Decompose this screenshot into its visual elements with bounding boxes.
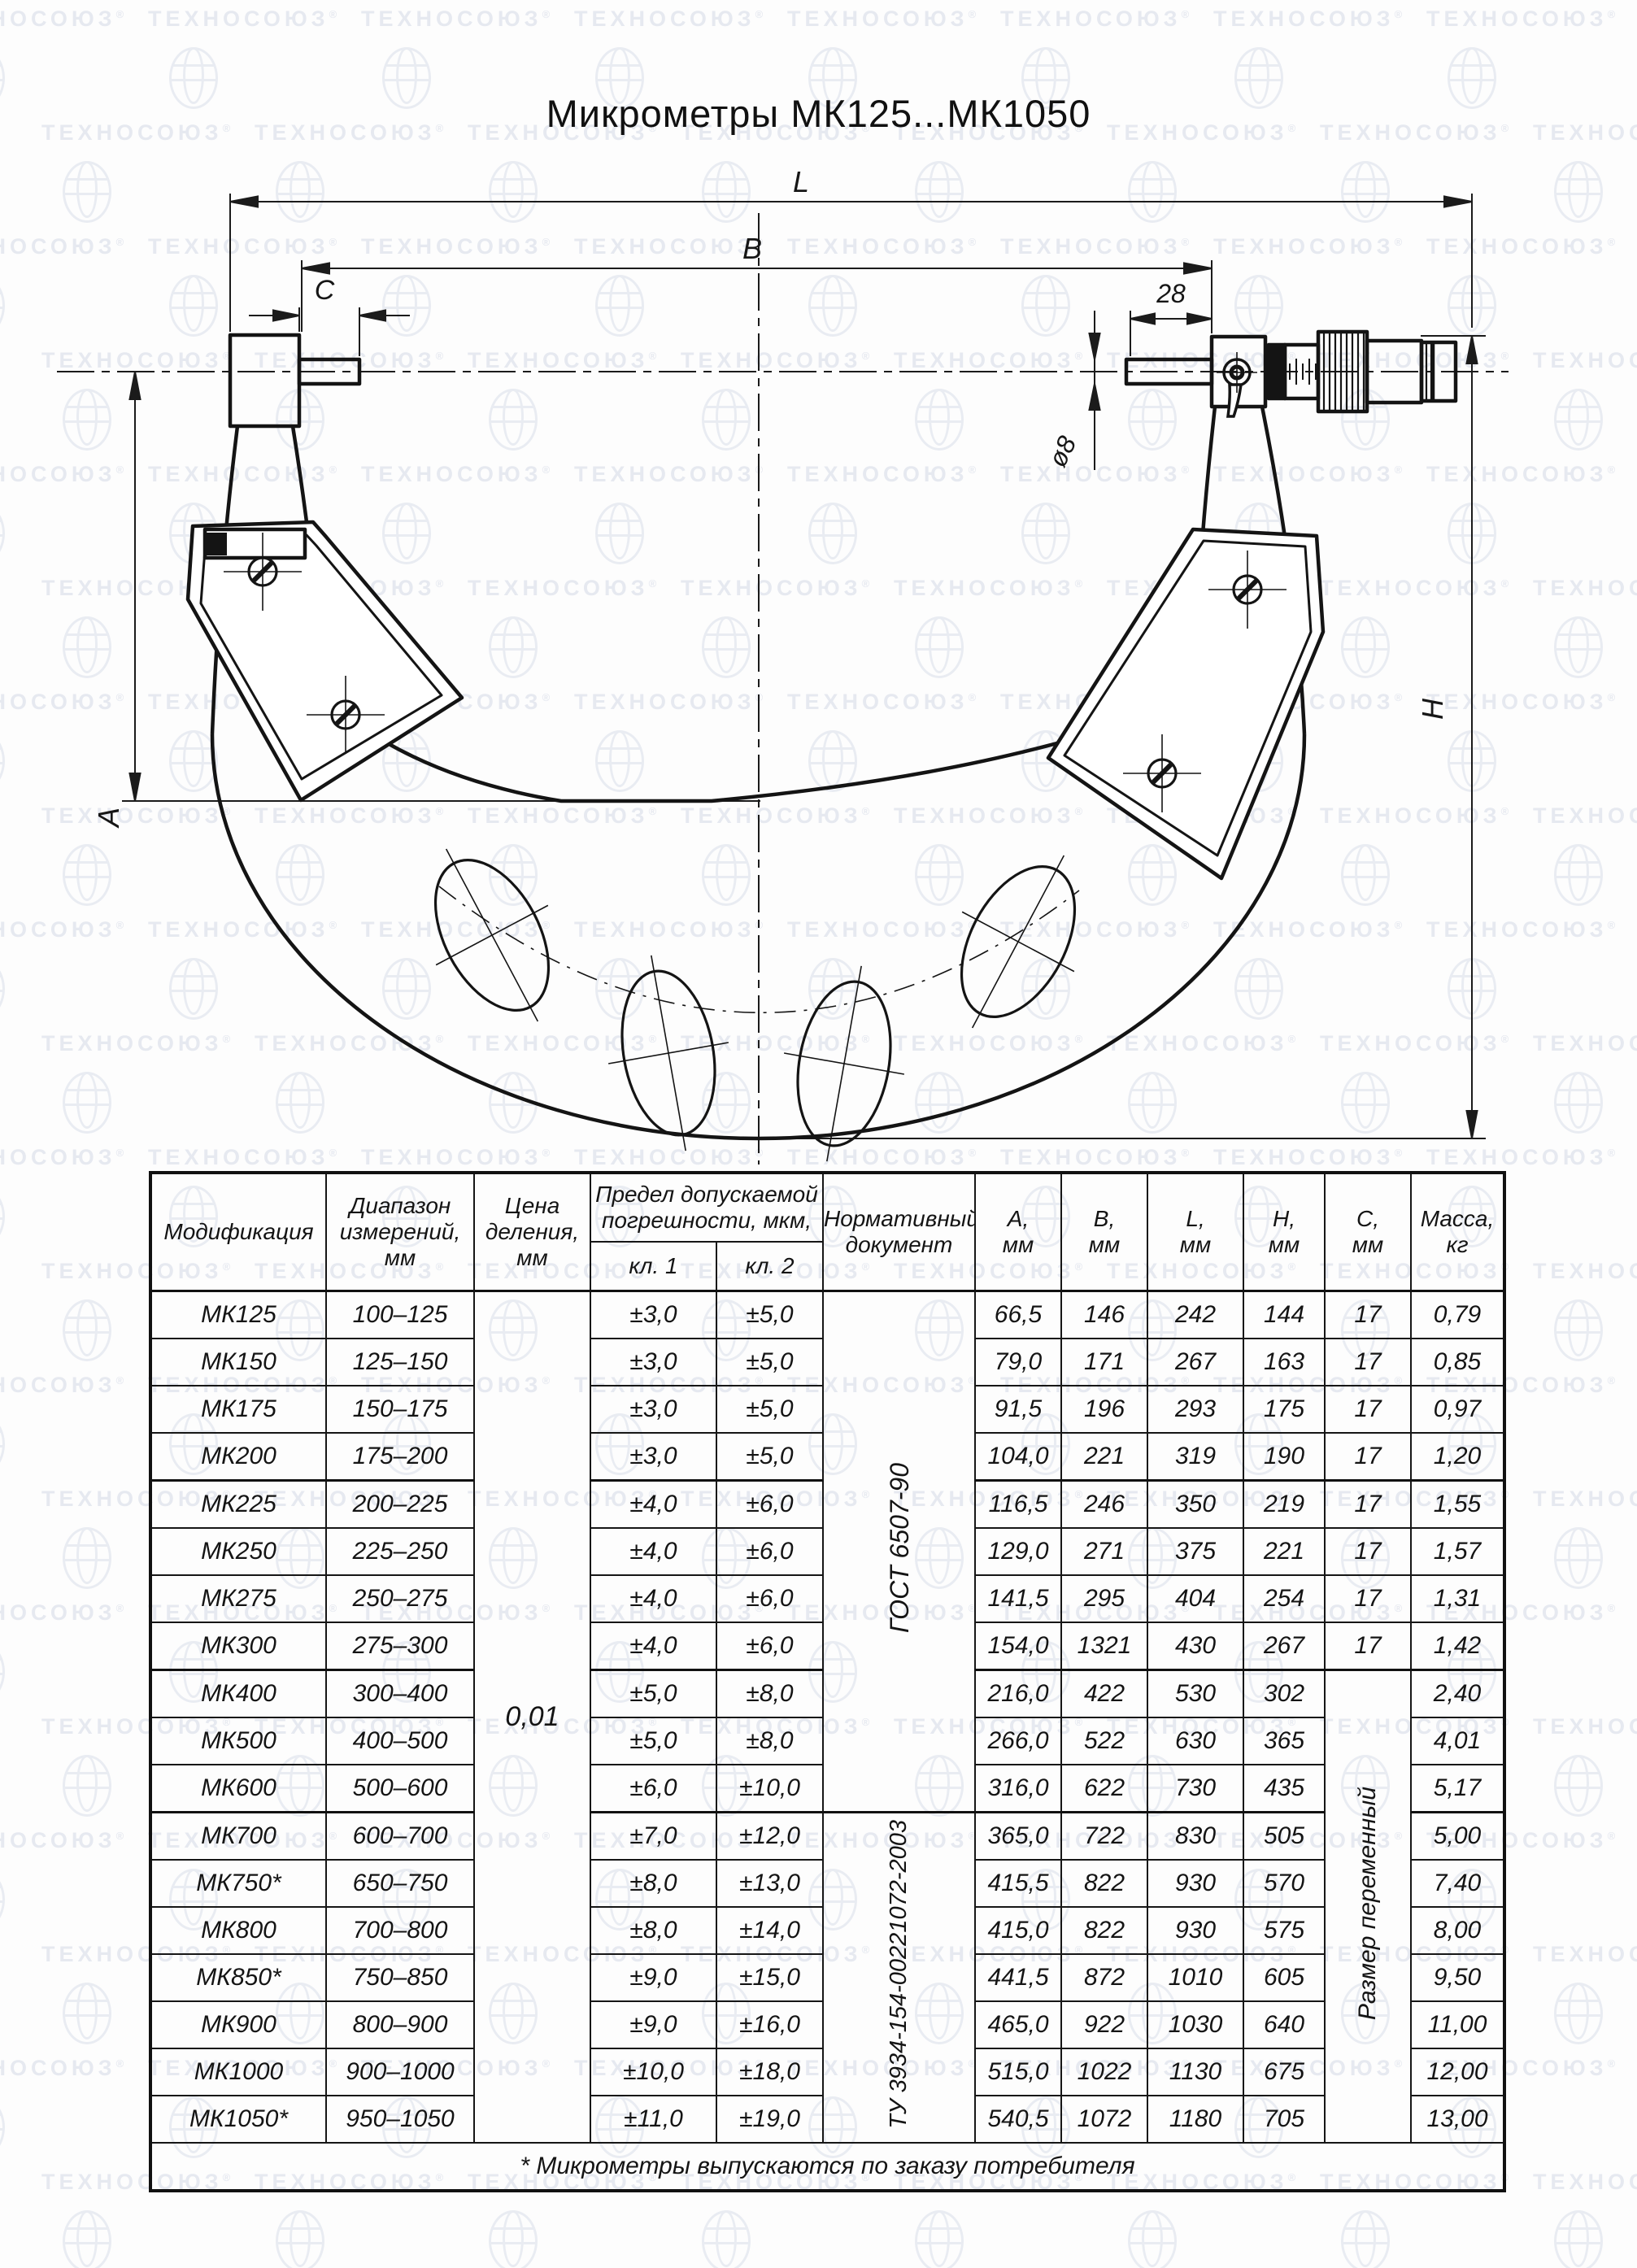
cell-modification: МК300 [150, 1622, 326, 1670]
globe-icon [1554, 1527, 1603, 1589]
dim-H [1467, 336, 1478, 1138]
cell-range: 150–175 [326, 1386, 474, 1433]
cell-range: 200–225 [326, 1481, 474, 1529]
cell-kl2: ±5,0 [716, 1386, 823, 1433]
cell-modification: МК700 [150, 1813, 326, 1861]
cell-kl2: ±14,0 [716, 1907, 823, 1954]
footnote: * Микрометры выпускаются по заказу потре… [150, 2143, 1504, 2191]
insulator-plate-right [1048, 529, 1323, 878]
cell-a: 154,0 [975, 1622, 1061, 1670]
cell-mass: 7,40 [1411, 1860, 1504, 1907]
cell-kl1: ±9,0 [590, 2001, 716, 2048]
globe-icon [1554, 1299, 1603, 1361]
globe-icon [63, 1527, 111, 1589]
watermark-tile: ТЕХНОСОЮЗ® [1533, 2166, 1637, 2268]
page-title: Микрометры МК125...МК1050 [0, 91, 1637, 136]
cell-l: 350 [1147, 1481, 1243, 1529]
cell-kl1: ±3,0 [590, 1339, 716, 1386]
watermark-text: ТЕХНОСОЮЗ® [1533, 1259, 1637, 1284]
col-header-price-division: Цена деления, мм [474, 1173, 590, 1291]
cell-l: 375 [1147, 1528, 1243, 1575]
footnote-row: * Микрометры выпускаются по заказу потре… [150, 2143, 1504, 2191]
cell-kl2: ±8,0 [716, 1670, 823, 1718]
cell-range: 225–250 [326, 1528, 474, 1575]
cell-b: 1022 [1061, 2048, 1147, 2096]
cell-modification: МК1050* [150, 2096, 326, 2143]
cell-mass: 11,00 [1411, 2001, 1504, 2048]
table-row: МК700600–700±7,0±12,0ТУ 3934-154-0022107… [150, 1813, 1504, 1861]
cell-c: 17 [1325, 1433, 1411, 1481]
cell-h: 267 [1243, 1622, 1325, 1670]
cell-l: 1030 [1147, 2001, 1243, 2048]
table-row: МК125100–1250,01±3,0±5,0ГОСТ 6507-9066,5… [150, 1291, 1504, 1339]
cell-a: 216,0 [975, 1670, 1061, 1718]
cell-range: 125–150 [326, 1339, 474, 1386]
cell-range: 300–400 [326, 1670, 474, 1718]
watermark-tile: ТЕХНОСОЮЗ® [0, 2053, 159, 2166]
cell-kl2: ±12,0 [716, 1813, 823, 1861]
watermark-text: ТЕХНОСОЮЗ® [1533, 1487, 1637, 1512]
col-header-document: Нормативный документ [823, 1173, 975, 1291]
cell-a: 66,5 [975, 1291, 1061, 1339]
cell-h: 705 [1243, 2096, 1325, 2143]
watermark-tile: ТЕХНОСОЮЗ® [0, 1369, 159, 1483]
cell-l: 319 [1147, 1433, 1243, 1481]
globe-icon [489, 2210, 538, 2268]
globe-icon [1554, 1755, 1603, 1817]
cell-b: 922 [1061, 2001, 1147, 2048]
spec-table-header: Модификация Диапазон измерений, мм Цена … [150, 1173, 1504, 1291]
globe-icon [0, 1186, 5, 1247]
col-header-kl1: кл. 1 [590, 1242, 716, 1291]
cell-modification: МК400 [150, 1670, 326, 1718]
cell-a: 316,0 [975, 1765, 1061, 1813]
cell-range: 750–850 [326, 1954, 474, 2001]
cell-b: 1072 [1061, 2096, 1147, 2143]
cell-modification: МК1000 [150, 2048, 326, 2096]
cell-l: 1130 [1147, 2048, 1243, 2096]
dim-28 [1130, 314, 1212, 324]
cell-h: 365 [1243, 1717, 1325, 1765]
cell-c: 17 [1325, 1291, 1411, 1339]
cell-a: 515,0 [975, 2048, 1061, 2096]
cell-b: 822 [1061, 1907, 1147, 1954]
watermark-tile: ТЕХНОСОЮЗ® [1533, 1711, 1637, 1825]
cell-mass: 9,50 [1411, 1954, 1504, 2001]
cell-l: 730 [1147, 1765, 1243, 1813]
watermark-text: ТЕХНОСОЮЗ® [0, 2056, 124, 2081]
cell-a: 415,0 [975, 1907, 1061, 1954]
cell-kl2: ±18,0 [716, 2048, 823, 2096]
cell-modification: МК150 [150, 1339, 326, 1386]
globe-icon [0, 2096, 5, 2158]
col-header-a: А, мм [975, 1173, 1061, 1291]
cell-c: 17 [1325, 1481, 1411, 1529]
cell-b: 271 [1061, 1528, 1147, 1575]
dim-label-28: 28 [1156, 279, 1186, 308]
cell-l: 830 [1147, 1813, 1243, 1861]
cell-h: 570 [1243, 1860, 1325, 1907]
watermark-text: ТЕХНОСОЮЗ® [0, 1600, 124, 1626]
cell-range: 175–200 [326, 1433, 474, 1481]
cell-kl2: ±6,0 [716, 1575, 823, 1622]
cell-kl2: ±6,0 [716, 1528, 823, 1575]
cell-kl2: ±13,0 [716, 1860, 823, 1907]
cell-a: 91,5 [975, 1386, 1061, 1433]
cell-mass: 0,97 [1411, 1386, 1504, 1433]
watermark-tile: ТЕХНОСОЮЗ® [1533, 1483, 1637, 1597]
cell-b: 422 [1061, 1670, 1147, 1718]
cell-a: 104,0 [975, 1433, 1061, 1481]
dim-L [230, 197, 1472, 207]
cell-mass: 1,20 [1411, 1433, 1504, 1481]
spec-table: Модификация Диапазон измерений, мм Цена … [149, 1171, 1506, 2192]
cell-b: 622 [1061, 1765, 1147, 1813]
globe-icon [1341, 2210, 1390, 2268]
cell-range: 800–900 [326, 2001, 474, 2048]
cell-range: 900–1000 [326, 2048, 474, 2096]
col-header-range: Диапазон измерений, мм [326, 1173, 474, 1291]
cell-l: 430 [1147, 1622, 1243, 1670]
cell-h: 221 [1243, 1528, 1325, 1575]
cell-range: 500–600 [326, 1765, 474, 1813]
watermark-text: ТЕХНОСОЮЗ® [1533, 2170, 1637, 2195]
watermark-tile: ТЕХНОСОЮЗ® [0, 1825, 159, 1939]
cell-mass: 2,40 [1411, 1670, 1504, 1718]
vernier-ring [1269, 345, 1285, 398]
cell-b: 246 [1061, 1481, 1147, 1529]
dim-label-A: А [92, 808, 125, 829]
cell-l: 293 [1147, 1386, 1243, 1433]
cell-kl1: ±9,0 [590, 1954, 716, 2001]
cell-h: 575 [1243, 1907, 1325, 1954]
spec-table-body: МК125100–1250,01±3,0±5,0ГОСТ 6507-9066,5… [150, 1291, 1504, 2144]
cell-mass: 1,57 [1411, 1528, 1504, 1575]
cell-kl1: ±11,0 [590, 2096, 716, 2143]
cell-modification: МК600 [150, 1765, 326, 1813]
dim-dia8 [1090, 311, 1100, 470]
cell-modification: МК750* [150, 1860, 326, 1907]
dim-C [249, 311, 410, 321]
col-header-b: В, мм [1061, 1173, 1147, 1291]
cell-l: 630 [1147, 1717, 1243, 1765]
cell-c: 17 [1325, 1622, 1411, 1670]
cell-h: 675 [1243, 2048, 1325, 2096]
globe-icon [0, 1869, 5, 1931]
cell-a: 141,5 [975, 1575, 1061, 1622]
dim-label-H: Н [1416, 698, 1449, 720]
cell-mass: 0,85 [1411, 1339, 1504, 1386]
cell-b: 872 [1061, 1954, 1147, 2001]
col-header-error-limit: Предел допускаемой погрешности, мкм, [590, 1173, 823, 1242]
watermark-text: ТЕХНОСОЮЗ® [0, 1373, 124, 1398]
cell-modification: МК900 [150, 2001, 326, 2048]
cell-a: 129,0 [975, 1528, 1061, 1575]
cell-kl1: ±8,0 [590, 1860, 716, 1907]
globe-icon [0, 1413, 5, 1475]
cell-b: 146 [1061, 1291, 1147, 1339]
cell-range: 600–700 [326, 1813, 474, 1861]
cell-kl2: ±15,0 [716, 1954, 823, 2001]
cell-l: 1180 [1147, 2096, 1243, 2143]
cell-kl2: ±5,0 [716, 1433, 823, 1481]
watermark-text: ТЕХНОСОЮЗ® [1533, 1714, 1637, 1739]
cell-h: 144 [1243, 1291, 1325, 1339]
globe-icon [702, 2210, 751, 2268]
cell-h: 254 [1243, 1575, 1325, 1622]
cell-l: 242 [1147, 1291, 1243, 1339]
cell-a: 365,0 [975, 1813, 1061, 1861]
cell-b: 221 [1061, 1433, 1147, 1481]
globe-icon [63, 1299, 111, 1361]
cell-doc-gost: ГОСТ 6507-90 [823, 1291, 975, 1813]
dim-label-C: C [315, 275, 335, 306]
dim-label-B: B [742, 232, 762, 265]
cell-h: 435 [1243, 1765, 1325, 1813]
globe-icon [63, 2210, 111, 2268]
cell-c: 17 [1325, 1528, 1411, 1575]
cell-kl1: ±5,0 [590, 1670, 716, 1718]
cell-kl1: ±4,0 [590, 1575, 716, 1622]
cell-modification: МК175 [150, 1386, 326, 1433]
cell-c: 17 [1325, 1339, 1411, 1386]
cell-modification: МК275 [150, 1575, 326, 1622]
cell-h: 219 [1243, 1481, 1325, 1529]
col-header-h: Н, мм [1243, 1173, 1325, 1291]
cell-kl2: ±19,0 [716, 2096, 823, 2143]
cell-a: 415,5 [975, 1860, 1061, 1907]
globe-icon [0, 1641, 5, 1703]
cell-a: 266,0 [975, 1717, 1061, 1765]
globe-icon [63, 1755, 111, 1817]
cell-c-variable: Размер переменный [1325, 1670, 1411, 2144]
cell-mass: 1,55 [1411, 1481, 1504, 1529]
cell-h: 505 [1243, 1813, 1325, 1861]
datasheet-page: ТЕХНОСОЮЗ®ТЕХНОСОЮЗ®ТЕХНОСОЮЗ®ТЕХНОСОЮЗ®… [0, 0, 1637, 2268]
cell-range: 400–500 [326, 1717, 474, 1765]
cell-kl2: ±8,0 [716, 1717, 823, 1765]
cell-h: 605 [1243, 1954, 1325, 2001]
watermark-text: ТЕХНОСОЮЗ® [0, 1828, 124, 1853]
cell-h: 640 [1243, 2001, 1325, 2048]
cell-mass: 4,01 [1411, 1717, 1504, 1765]
globe-icon [1128, 2210, 1177, 2268]
cell-a: 116,5 [975, 1481, 1061, 1529]
watermark-tile: ТЕХНОСОЮЗ® [1533, 1256, 1637, 1369]
globe-icon [1554, 1983, 1603, 2044]
cell-mass: 8,00 [1411, 1907, 1504, 1954]
cell-a: 79,0 [975, 1339, 1061, 1386]
cell-modification: МК200 [150, 1433, 326, 1481]
anvil-block [230, 335, 299, 426]
cell-l: 530 [1147, 1670, 1243, 1718]
cell-range: 650–750 [326, 1860, 474, 1907]
cell-a: 540,5 [975, 2096, 1061, 2143]
cell-b: 722 [1061, 1813, 1147, 1861]
col-header-mass: Масса, кг [1411, 1173, 1504, 1291]
col-header-l: L, мм [1147, 1173, 1243, 1291]
cell-modification: МК850* [150, 1954, 326, 2001]
watermark-text: ТЕХНОСОЮЗ® [1533, 1942, 1637, 1967]
cell-kl1: ±3,0 [590, 1433, 716, 1481]
cell-b: 522 [1061, 1717, 1147, 1765]
cell-kl2: ±5,0 [716, 1291, 823, 1339]
cell-mass: 0,79 [1411, 1291, 1504, 1339]
cell-doc-tu: ТУ 3934-154-00221072-2003 [823, 1813, 975, 2144]
cell-kl1: ±7,0 [590, 1813, 716, 1861]
watermark-tile: ТЕХНОСОЮЗ® [1533, 1939, 1637, 2053]
cell-l: 930 [1147, 1907, 1243, 1954]
cell-mass: 1,31 [1411, 1575, 1504, 1622]
col-header-modification: Модификация [150, 1173, 326, 1291]
cell-range: 700–800 [326, 1907, 474, 1954]
cell-l: 267 [1147, 1339, 1243, 1386]
cell-kl1: ±4,0 [590, 1481, 716, 1529]
cell-modification: МК800 [150, 1907, 326, 1954]
cell-kl2: ±5,0 [716, 1339, 823, 1386]
cell-kl1: ±3,0 [590, 1386, 716, 1433]
cell-range: 100–125 [326, 1291, 474, 1339]
cell-h: 175 [1243, 1386, 1325, 1433]
globe-icon [63, 1983, 111, 2044]
cell-h: 163 [1243, 1339, 1325, 1386]
watermark-tile: ТЕХНОСОЮЗ® [0, 1597, 159, 1711]
cell-kl1: ±3,0 [590, 1291, 716, 1339]
cell-kl1: ±6,0 [590, 1765, 716, 1813]
cell-b: 1321 [1061, 1622, 1147, 1670]
cell-c: 17 [1325, 1386, 1411, 1433]
cell-kl2: ±16,0 [716, 2001, 823, 2048]
cell-b: 171 [1061, 1339, 1147, 1386]
cell-modification: МК225 [150, 1481, 326, 1529]
cell-c: 17 [1325, 1575, 1411, 1622]
cell-mass: 1,42 [1411, 1622, 1504, 1670]
cell-l: 404 [1147, 1575, 1243, 1622]
cell-range: 275–300 [326, 1622, 474, 1670]
globe-icon [915, 2210, 964, 2268]
cell-mass: 5,00 [1411, 1813, 1504, 1861]
cell-price-division: 0,01 [474, 1291, 590, 2144]
col-header-c: С, мм [1325, 1173, 1411, 1291]
cell-h: 302 [1243, 1670, 1325, 1718]
cell-kl1: ±4,0 [590, 1528, 716, 1575]
cell-kl1: ±4,0 [590, 1622, 716, 1670]
cell-kl1: ±10,0 [590, 2048, 716, 2096]
cell-mass: 12,00 [1411, 2048, 1504, 2096]
col-header-kl2: кл. 2 [716, 1242, 823, 1291]
cell-b: 822 [1061, 1860, 1147, 1907]
cell-kl1: ±5,0 [590, 1717, 716, 1765]
cell-kl1: ±8,0 [590, 1907, 716, 1954]
cell-modification: МК250 [150, 1528, 326, 1575]
globe-icon [276, 2210, 324, 2268]
cell-l: 1010 [1147, 1954, 1243, 2001]
cell-range: 250–275 [326, 1575, 474, 1622]
cell-b: 196 [1061, 1386, 1147, 1433]
cell-a: 465,0 [975, 2001, 1061, 2048]
cell-kl2: ±6,0 [716, 1481, 823, 1529]
cell-kl2: ±6,0 [716, 1622, 823, 1670]
cell-b: 295 [1061, 1575, 1147, 1622]
cell-mass: 13,00 [1411, 2096, 1504, 2143]
cell-mass: 5,17 [1411, 1765, 1504, 1813]
cell-modification: МК125 [150, 1291, 326, 1339]
dim-label-dia8: ø8 [1043, 431, 1082, 472]
micrometer-drawing: L B C 28 ø8 А Н [0, 0, 1637, 1171]
cell-l: 930 [1147, 1860, 1243, 1907]
cell-kl2: ±10,0 [716, 1765, 823, 1813]
cell-range: 950–1050 [326, 2096, 474, 2143]
dim-A [130, 372, 141, 801]
frame-holes [390, 819, 1120, 1171]
globe-icon [1554, 2210, 1603, 2268]
cell-a: 441,5 [975, 1954, 1061, 2001]
cell-h: 190 [1243, 1433, 1325, 1481]
cell-modification: МК500 [150, 1717, 326, 1765]
dim-label-L: L [793, 165, 809, 198]
